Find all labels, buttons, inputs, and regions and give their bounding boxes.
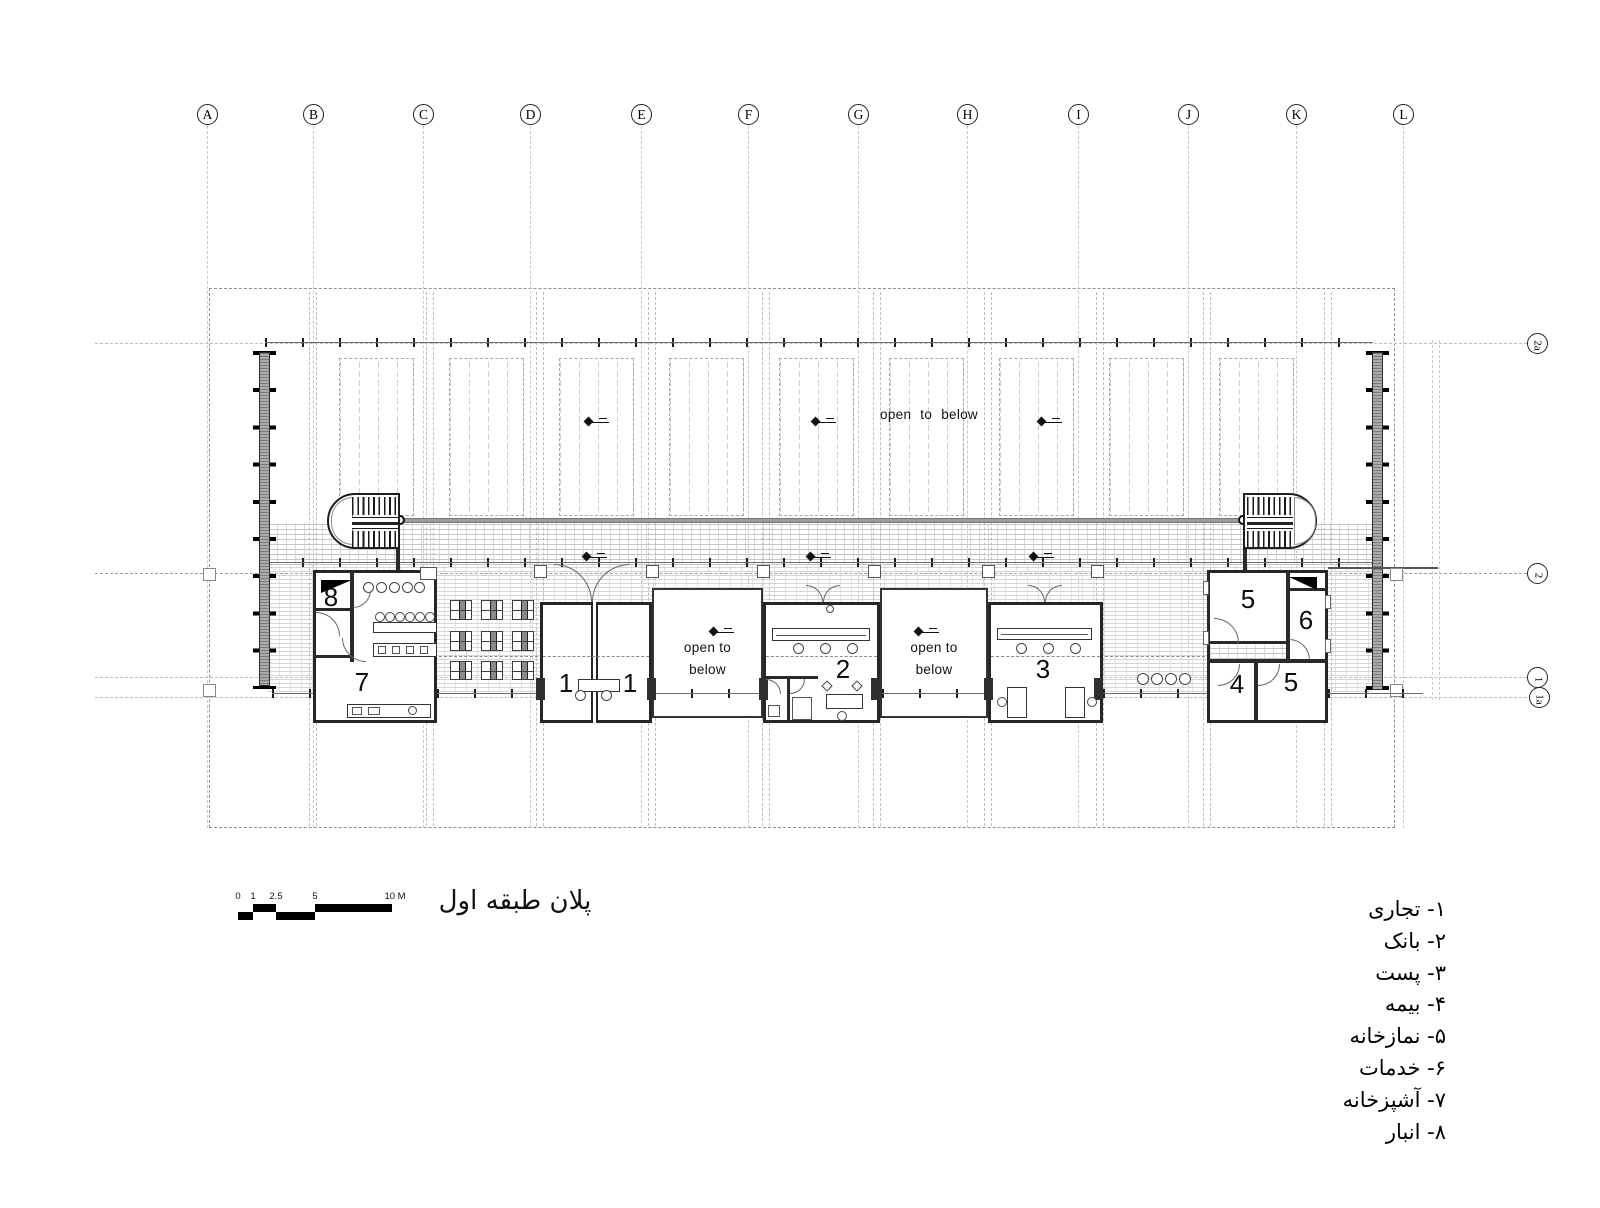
grid-bubble-I: I — [1068, 104, 1089, 125]
stool — [402, 582, 413, 593]
waiting-chair — [1137, 673, 1149, 685]
legend: ۱- تجاری ۲- بانک ۳- پست ۴- بیمه ۵- نمازخ… — [1146, 894, 1446, 1148]
appliance — [378, 646, 386, 654]
appliance — [420, 646, 428, 654]
grid-bubble-2a: 2a — [1527, 333, 1548, 354]
grid-row-label: 2 — [1527, 573, 1548, 579]
void-bay — [999, 358, 1074, 516]
room-label-3: 3 — [1030, 656, 1056, 682]
chair — [1043, 643, 1054, 654]
shelving-unit — [481, 661, 503, 680]
stair-left-treads — [352, 497, 398, 515]
stool — [395, 612, 405, 622]
chair — [847, 643, 858, 654]
room-label-6: 6 — [1293, 607, 1319, 633]
void-bay — [669, 358, 744, 516]
void-bay — [889, 358, 964, 516]
room-label-5: 5 — [1278, 669, 1304, 695]
open-to-below-line2: below — [880, 659, 988, 681]
stair-right-treads — [1247, 531, 1293, 549]
grid-bubble-B: B — [303, 104, 324, 125]
grid-bubble-E: E — [631, 104, 652, 125]
level-marker — [807, 551, 831, 561]
stool — [363, 582, 374, 593]
chair — [1070, 643, 1081, 654]
shelving-unit — [481, 631, 503, 651]
left-facade-strip — [259, 352, 270, 686]
wall-niche — [1203, 631, 1209, 645]
zone-dash-line — [543, 656, 649, 657]
scale-mark-1: 1 — [245, 891, 261, 902]
rear-wall-line — [1328, 567, 1438, 569]
grid-bubble-C: C — [413, 104, 434, 125]
bay-pier — [1094, 678, 1103, 700]
shelving-unit — [512, 631, 534, 651]
sink — [352, 707, 362, 715]
stool — [415, 612, 425, 622]
slab-edge-bottom — [1328, 689, 1423, 698]
level-marker — [585, 416, 609, 426]
party-wall — [591, 602, 598, 723]
wall-niche — [1203, 581, 1209, 595]
grid-bubble-L: L — [1393, 104, 1414, 125]
grid-bubble-G: G — [848, 104, 869, 125]
slab-edge-top — [265, 338, 1373, 347]
chair — [997, 697, 1007, 707]
grid-bubble-F: F — [738, 104, 759, 125]
right-facade-strip — [1372, 352, 1383, 690]
scale-mark-25: 2.5 — [266, 891, 286, 902]
counter-line — [1001, 634, 1088, 635]
right-extension-line — [1439, 340, 1440, 700]
open-to-below-label: open to below — [880, 637, 988, 680]
grid-bubble-1: 1 — [1527, 667, 1548, 688]
counter-line — [776, 635, 866, 636]
grid-row-label: 1a — [1529, 694, 1550, 704]
chair — [837, 711, 847, 721]
grid-bubble-2: 2 — [1527, 563, 1548, 584]
stair-right-treads — [1247, 497, 1293, 515]
pilaster — [868, 565, 881, 578]
waiting-chair — [1151, 673, 1163, 685]
wall — [1286, 588, 1328, 591]
level-marker — [710, 626, 734, 636]
void-bay — [1109, 358, 1184, 516]
right-extension-line — [1432, 340, 1433, 700]
wall — [313, 655, 353, 658]
room-label-1: 1 — [617, 670, 643, 696]
slab-edge-bottom — [882, 689, 986, 698]
grid-line-J — [1188, 126, 1189, 828]
grid-line-A — [207, 126, 208, 828]
scale-mark-0: 0 — [230, 891, 246, 902]
open-to-below-label-top: open to below — [855, 404, 1003, 426]
slab-edge-bottom — [1103, 689, 1207, 698]
clock — [826, 605, 834, 613]
room-label-1: 1 — [553, 670, 579, 696]
pilaster — [757, 565, 770, 578]
room-label-5: 5 — [1235, 586, 1261, 612]
grid-row-label: 2a — [1527, 340, 1548, 350]
grid-row-label: 1 — [1527, 677, 1548, 683]
legend-item-7: ۷- آشپزخانه — [1146, 1085, 1446, 1117]
level-marker — [812, 416, 836, 426]
stool — [405, 612, 415, 622]
gallery-rail — [400, 518, 1243, 523]
stair-left-wall — [396, 549, 400, 571]
duct — [420, 567, 437, 580]
appliance — [406, 646, 414, 654]
legend-item-1: ۱- تجاری — [1146, 894, 1446, 926]
level-marker — [1038, 416, 1062, 426]
shelving-unit — [450, 631, 472, 651]
pilaster — [982, 565, 995, 578]
slab-edge-bottom — [437, 689, 540, 698]
grid-bubble-K: K — [1286, 104, 1307, 125]
chair — [820, 643, 831, 654]
grid-bubble-A: A — [197, 104, 218, 125]
room-label-8: 8 — [318, 584, 344, 610]
grid-line-L — [1403, 126, 1404, 828]
grid-bubble-1a: 1a — [1529, 687, 1550, 708]
void-bay — [449, 358, 524, 516]
appliance — [392, 646, 400, 654]
legend-item-3: ۳- پست — [1146, 958, 1446, 990]
shelving-unit — [512, 661, 534, 680]
pilaster — [646, 565, 659, 578]
level-marker — [583, 551, 607, 561]
zone-dash-line — [1105, 656, 1205, 657]
void-bay — [559, 358, 634, 516]
scale-bar-segment — [253, 904, 276, 912]
open-to-below-line1: open to — [652, 637, 763, 659]
legend-item-5: ۵- نمازخانه — [1146, 1021, 1446, 1053]
grid-bubble-D: D — [520, 104, 541, 125]
block-corridor-hatch — [1210, 645, 1286, 659]
desk — [1007, 687, 1027, 718]
scale-mark-10m: 10 M — [377, 891, 413, 902]
column-marker — [203, 684, 216, 697]
stool — [425, 612, 435, 622]
stool — [414, 582, 425, 593]
scale-bar-segment — [276, 912, 315, 920]
grid-bubble-J: J — [1178, 104, 1199, 125]
waiting-chair — [1179, 673, 1191, 685]
shop-counter — [578, 679, 620, 692]
legend-item-8: ۸- انبار — [1146, 1117, 1446, 1149]
drawing-title: پلان طبقه اول — [430, 886, 600, 916]
slab-edge-bottom — [654, 689, 761, 698]
stair-left-treads — [352, 531, 398, 549]
stool — [385, 612, 395, 622]
level-marker — [915, 626, 939, 636]
legend-item-4: ۴- بیمه — [1146, 989, 1446, 1021]
stair-left-landing — [352, 517, 398, 529]
shelving-unit — [512, 600, 534, 620]
meeting-table — [826, 694, 863, 709]
legend-item-2: ۲- بانک — [1146, 926, 1446, 958]
scale-bar-segment — [315, 904, 392, 912]
waiting-chair — [1165, 673, 1177, 685]
room-label-7: 7 — [349, 669, 375, 695]
bay-pier — [647, 678, 656, 700]
chair — [1087, 697, 1097, 707]
room-label-4: 4 — [1224, 671, 1250, 697]
desk — [1065, 687, 1085, 718]
zone-dash-line — [766, 656, 877, 657]
hob — [408, 706, 417, 715]
pilaster — [534, 565, 547, 578]
grid-line-D — [530, 126, 531, 828]
zone-dash-line — [439, 656, 538, 657]
grid-line-F — [748, 126, 749, 828]
bay-pier — [984, 678, 993, 700]
scale-mark-5: 5 — [307, 891, 323, 902]
pilaster — [1091, 565, 1104, 578]
stool — [375, 612, 385, 622]
wc-stall — [792, 697, 812, 720]
scale-bar-segment — [238, 912, 253, 920]
shelving-unit — [450, 661, 472, 680]
chair — [601, 690, 612, 701]
shelving-unit — [481, 600, 503, 620]
bay-pier — [871, 678, 880, 700]
void-bay — [779, 358, 854, 516]
wc-fixture — [768, 705, 780, 717]
room-label-2: 2 — [830, 656, 856, 682]
column-marker — [203, 568, 216, 581]
shelving-unit — [450, 600, 472, 620]
grid-line-H — [967, 126, 968, 828]
stair-right-landing — [1247, 517, 1293, 529]
bay-pier — [536, 678, 545, 700]
stair-right-wall — [1243, 549, 1247, 571]
sink — [368, 707, 380, 715]
grid-bubble-H: H — [957, 104, 978, 125]
column-marker — [1390, 568, 1403, 581]
stool — [376, 582, 387, 593]
slab-edge-bottom — [272, 689, 313, 698]
chair — [1016, 643, 1027, 654]
legend-item-6: ۶- خدمات — [1146, 1053, 1446, 1085]
open-to-below-line1: open to — [880, 637, 988, 659]
stool — [389, 582, 400, 593]
wall-niche — [1325, 639, 1331, 653]
kitchen-counter — [373, 622, 437, 633]
chair — [793, 643, 804, 654]
open-to-below-label: open to below — [652, 637, 763, 680]
level-marker — [1030, 551, 1054, 561]
open-to-below-line2: below — [652, 659, 763, 681]
wall-niche — [1325, 595, 1331, 609]
floor-plan-drawing: open to below — [0, 0, 1600, 1208]
